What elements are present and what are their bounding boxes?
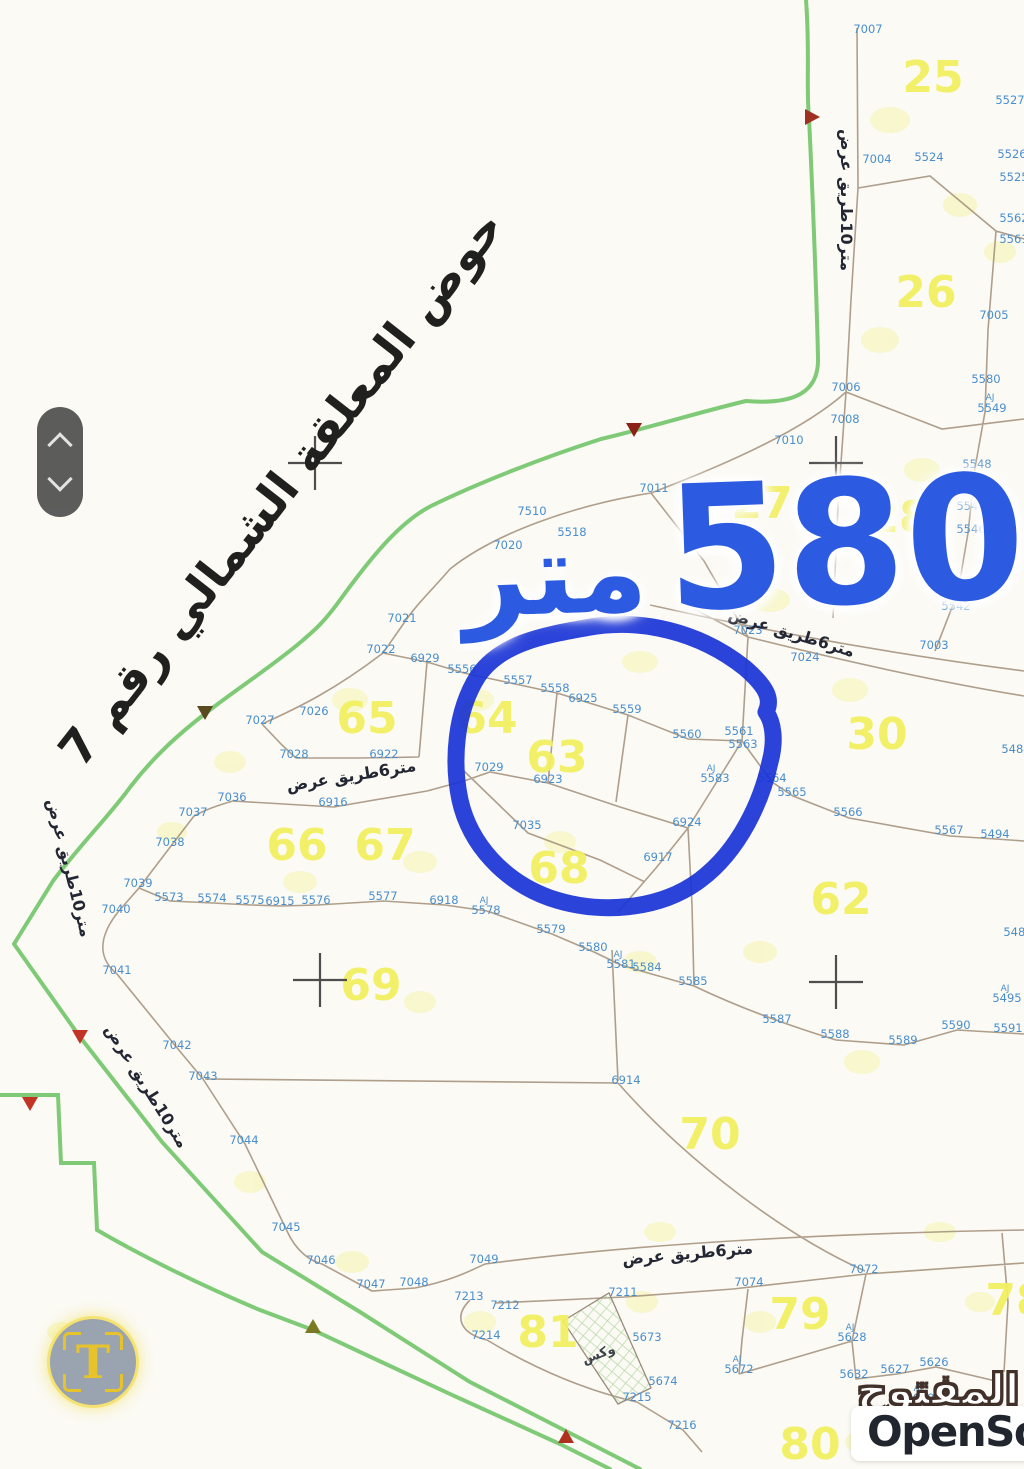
plot-number: 6929 [410,651,439,665]
plot-number: 7047 [356,1277,385,1291]
text-scan-button[interactable]: T [50,1319,136,1405]
road-width-label: متر6طريق عرض [285,756,417,795]
chevron-down-icon[interactable] [47,466,72,491]
plot-number: 7043 [188,1069,217,1083]
plot-number: 5580 [971,372,1000,386]
plot-number: 5576 [301,893,330,907]
plot-number: 5673 [632,1330,661,1344]
plot-number: 5588 [820,1027,849,1041]
plot-number: 5524 [914,150,943,164]
road-width-label: متر10طريق عرض [837,129,856,271]
plot-number: 7049 [469,1252,498,1266]
plot-number: 5527 [995,93,1024,107]
plot-number: 7045 [271,1220,300,1234]
plot-number: 5578 [471,903,500,917]
parcel-number: 78 [985,1275,1024,1326]
plot-number: 7072 [849,1262,878,1276]
parcel-number: 81 [517,1307,578,1358]
plot-number: 7048 [399,1275,428,1289]
plot-number: 7046 [306,1253,335,1267]
plot-number: 7212 [490,1298,519,1312]
plot-number: 5561 [724,724,753,738]
plot-number: 5584 [632,960,661,974]
parcel-number: 69 [340,960,401,1011]
area-measurement-value: 580 [662,437,1024,650]
plot-number: 5591 [993,1021,1022,1035]
cadastral-map: 252627283062636465666768697078798081 700… [0,0,1024,1469]
survey-triangle-mark [22,1097,38,1111]
plot-number: 6914 [611,1073,640,1087]
scan-frame-icon: T [65,1334,121,1390]
plot-number: 5587 [762,1012,791,1026]
plot-number: 5579 [536,922,565,936]
plot-number: 6916 [318,795,347,809]
plot-number: 6925 [568,691,597,705]
plot-number: 5585 [678,974,707,988]
chevron-up-icon[interactable] [47,432,72,457]
plot-number: 6918 [429,893,458,907]
plot-number: 5590 [941,1018,970,1032]
plot-number: 5562 [999,211,1024,225]
plot-number: 5494 [980,827,1009,841]
plot-number: 7211 [608,1285,637,1299]
plot-number: 7213 [454,1289,483,1303]
plot-number: 5567 [934,823,963,837]
plot-number: 6923 [533,772,562,786]
plot-number: 5549 [977,401,1006,415]
plot-number: 7038 [155,835,184,849]
plot-number: 5581 [606,957,635,971]
plot-number: 5560 [672,727,701,741]
parcel-number: 62 [810,874,871,925]
parcel-number: 79 [769,1289,830,1340]
plot-number: 7040 [101,902,130,916]
plot-number: 7036 [217,790,246,804]
plot-number: 5580 [578,940,607,954]
plot-number: 5575 [235,893,264,907]
plot-number: 5565 [777,785,806,799]
plot-number: 7215 [622,1390,651,1404]
plot-number: 5674 [648,1374,677,1388]
plot-number: 7004 [862,152,891,166]
plot-number: 5589 [888,1033,917,1047]
plot-number: 7216 [667,1418,696,1432]
plot-number: 5561 [999,232,1024,246]
parcel-number: 67 [354,820,415,871]
road-width-label: متر6طريق عرض [621,1238,753,1268]
plot-number: 5526 [997,147,1024,161]
parcel-number: 80 [779,1419,840,1469]
plot-number: 5559 [612,702,641,716]
road-width-label: متر10طريق عرض [43,796,96,938]
plot-number: 6915 [265,894,294,908]
plot-number: 7022 [366,642,395,656]
plot-number: 5484 [1001,742,1024,756]
plot-number: 7028 [279,747,308,761]
plot-number: 7037 [178,805,207,819]
area-measurement-unit: متر [460,507,649,643]
plot-number: 5557 [503,673,532,687]
plot-number: 7024 [790,650,819,664]
grid-cross-mark [809,955,863,1009]
plot-number: 7007 [853,22,882,36]
plot-number: 5577 [368,889,397,903]
plot-number: 5563 [728,737,757,751]
plot-number: 5583 [700,771,729,785]
parcel-number: 26 [895,267,956,318]
plot-number: 5485 [1003,925,1024,939]
plot-number: 5566 [833,805,862,819]
survey-triangle-mark [805,109,820,125]
plot-number: 7041 [102,963,131,977]
plot-number: 7026 [299,704,328,718]
plot-number: 5573 [154,890,183,904]
parcel-number: 70 [679,1109,740,1160]
plot-number: 7042 [162,1038,191,1052]
plot-number: 5495 [992,991,1021,1005]
plot-number: 7214 [471,1328,500,1342]
plot-number: 7005 [979,308,1008,322]
plot-number: 5628 [837,1330,866,1344]
plot-number: 6924 [672,815,701,829]
plot-number: 7029 [474,760,503,774]
plot-number: 5525 [999,170,1024,184]
plot-number: 7074 [734,1275,763,1289]
parcel-number: 66 [266,820,327,871]
plot-number: 7006 [831,380,860,394]
plot-number: 5672 [724,1362,753,1376]
grid-cross-mark [293,953,347,1007]
plot-number: 7021 [387,611,416,625]
plot-number: 7008 [830,412,859,426]
plot-number: 7039 [123,876,152,890]
plot-number: 5574 [197,891,226,905]
plot-number: 7027 [245,713,274,727]
opensooq-logo: OpenSooq [851,1406,1024,1461]
plot-number: 7035 [512,818,541,832]
plot-number: 5558 [540,681,569,695]
area-measurement: 580 متر [437,452,1024,644]
plot-number: 7044 [229,1133,258,1147]
plot-number: 6917 [643,850,672,864]
scroll-stepper[interactable] [37,407,83,517]
parcel-number: 30 [846,709,907,760]
parcel-number: 65 [336,693,397,744]
parcel-number: 25 [902,52,963,103]
